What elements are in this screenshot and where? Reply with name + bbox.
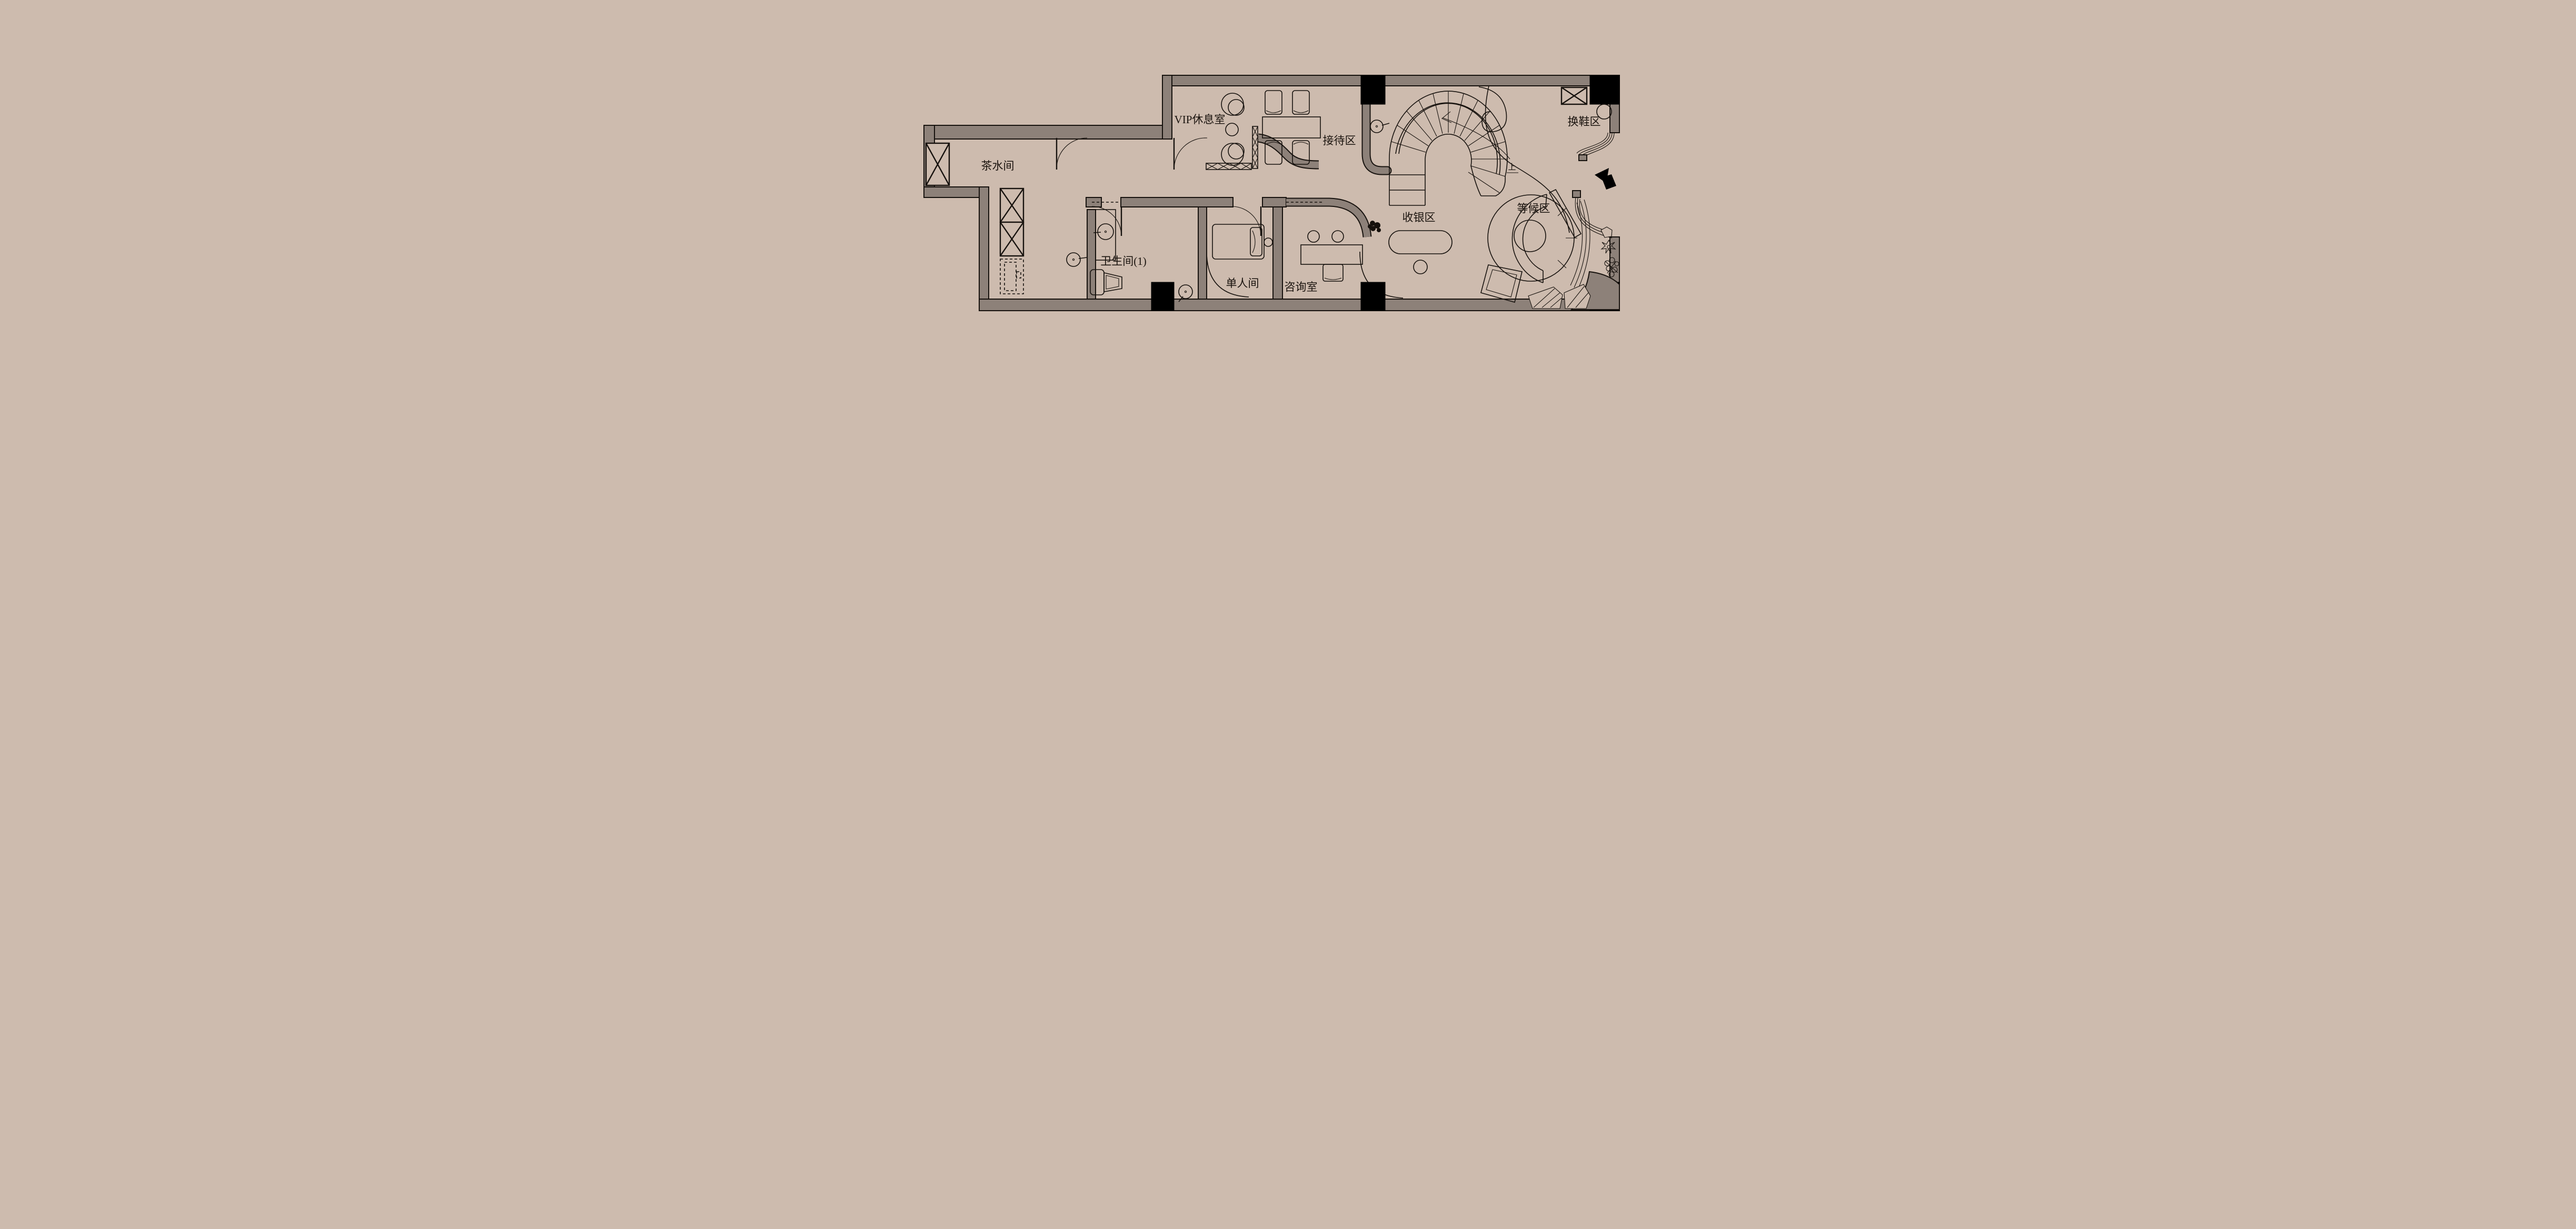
column-bottom-center xyxy=(1361,282,1385,311)
shaft-box-tea-1 xyxy=(1000,189,1023,222)
spiral-staircase: 上 xyxy=(1389,87,1518,205)
door-tea-room xyxy=(1056,138,1087,170)
furniture-cashier xyxy=(1389,231,1452,274)
window-strip-vip-right xyxy=(1252,126,1258,169)
interior-walls xyxy=(1086,86,1569,299)
door-single-room xyxy=(1233,206,1261,236)
wall-bath-single xyxy=(1198,207,1207,299)
wall-top xyxy=(1162,75,1619,86)
floor-plan-drawing: 上 xyxy=(876,0,1701,394)
label-reception: 接待区 xyxy=(1322,134,1356,147)
column-top-center xyxy=(1361,75,1385,104)
furniture-vip xyxy=(1221,93,1244,165)
hatched-pod-1 xyxy=(1528,287,1563,309)
stairs-straight-run xyxy=(1389,159,1425,205)
bed-pillow xyxy=(1250,227,1262,256)
wall-single-consult xyxy=(1273,207,1282,299)
window-symbols xyxy=(926,87,1587,294)
column-bottom-left xyxy=(1151,282,1174,311)
wall-roomrow-c xyxy=(1262,197,1286,207)
window-box-left xyxy=(926,143,949,185)
window-sill-vip-bottom xyxy=(1206,163,1251,170)
vip-chair-2-seat xyxy=(1228,143,1244,159)
furniture-single-room xyxy=(1212,224,1272,259)
wall-curve-consult-ne-fill xyxy=(1286,202,1367,237)
single-room-stool xyxy=(1264,238,1272,246)
consult-stool-1 xyxy=(1308,231,1319,242)
wall-topleft xyxy=(924,125,1162,139)
entry-jamb-upper xyxy=(1579,155,1587,161)
consult-desk xyxy=(1301,245,1362,264)
entry-jamb-lower xyxy=(1573,191,1580,197)
door-vip xyxy=(1174,138,1207,170)
wall-bottom xyxy=(979,299,1619,311)
wall-basin-reception xyxy=(1370,120,1389,133)
stairs-up-label: 上 xyxy=(1508,163,1516,172)
bathroom-sink xyxy=(1093,224,1113,240)
label-cashier: 收银区 xyxy=(1402,211,1435,224)
wall-left-lower xyxy=(979,187,989,311)
label-vip-lounge: VIP休息室 xyxy=(1174,113,1225,126)
label-shoe-change: 换鞋区 xyxy=(1567,115,1600,128)
reception-table xyxy=(1262,117,1320,138)
vip-chair-2 xyxy=(1221,143,1244,165)
label-consult-room: 咨询室 xyxy=(1284,281,1317,293)
entry-arrow-icon xyxy=(1595,168,1616,190)
window-box-shoe xyxy=(1561,87,1587,104)
waiting-round-table xyxy=(1514,220,1546,252)
wall-basin-pantry xyxy=(1067,253,1087,266)
stairs-treads xyxy=(1391,92,1507,193)
label-waiting: 等候区 xyxy=(1517,202,1550,215)
cashier-counter xyxy=(1389,231,1452,254)
furniture-tea-room xyxy=(1067,253,1087,266)
reception-chair-1 xyxy=(1265,91,1282,114)
vip-chair-1 xyxy=(1221,93,1244,115)
stairs-handrail-curl xyxy=(1479,87,1507,132)
wall-vip-left xyxy=(1162,75,1172,139)
outer-walls xyxy=(924,75,1619,311)
column-top-right xyxy=(1590,75,1619,104)
furniture-consult xyxy=(1301,231,1362,281)
vip-side-table xyxy=(1226,123,1238,136)
shaft-box-tea-2 xyxy=(1000,222,1023,256)
stone-icon xyxy=(1601,227,1612,237)
wall-pantry-bath xyxy=(1087,210,1096,299)
wall-roomrow-b xyxy=(1121,197,1233,207)
wall-hook-reception-fill xyxy=(1366,104,1387,171)
label-bathroom: 卫生间(1) xyxy=(1100,255,1147,267)
facade-upper-curves xyxy=(1577,133,1614,158)
vip-chair-1-seat xyxy=(1228,100,1244,115)
label-single-room: 单人间 xyxy=(1226,277,1259,290)
appliance-dashed-box xyxy=(1000,259,1023,294)
stairs-up-arrow xyxy=(1442,112,1510,159)
massage-bed xyxy=(1212,224,1264,259)
cashier-stool xyxy=(1414,260,1427,274)
consult-stool-2 xyxy=(1332,231,1344,242)
floor-plan-page: 上 xyxy=(876,0,1701,394)
stairs-inner-edge xyxy=(1425,134,1481,196)
reception-chair-2 xyxy=(1292,91,1309,114)
wall-curve-single-sw xyxy=(1207,252,1249,297)
waiting-lounge-chair xyxy=(1481,265,1522,302)
label-tea-room: 茶水间 xyxy=(981,160,1014,172)
